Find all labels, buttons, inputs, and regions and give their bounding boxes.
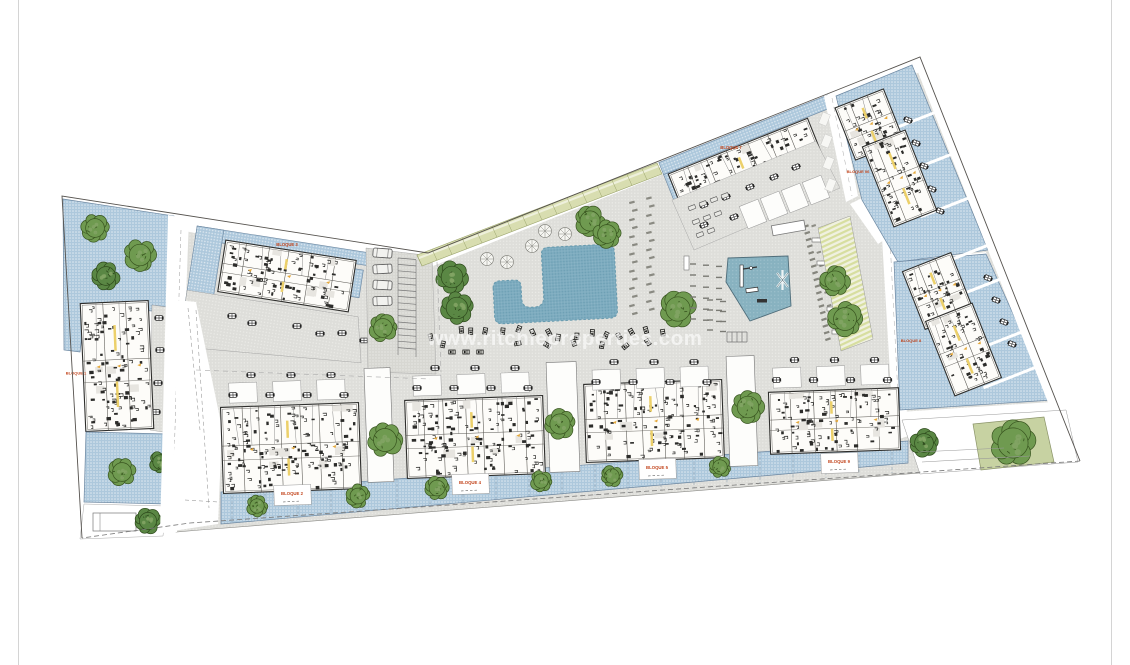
svg-text:BLOQUE 9: BLOQUE 9 bbox=[828, 459, 851, 464]
svg-text:BLOQUE 06: BLOQUE 06 bbox=[847, 169, 870, 174]
svg-text:BLOQUE 2: BLOQUE 2 bbox=[281, 491, 304, 496]
svg-text:BLOQUE 5: BLOQUE 5 bbox=[646, 465, 669, 470]
svg-text:BLOQUE 3: BLOQUE 3 bbox=[276, 242, 298, 247]
svg-text:www.ritchieproperties.com: www.ritchieproperties.com bbox=[427, 327, 703, 350]
svg-text:BLOQUE 8: BLOQUE 8 bbox=[901, 338, 922, 343]
svg-text:BLOQUE 7: BLOQUE 7 bbox=[720, 145, 742, 150]
svg-text:BLOQUE 4: BLOQUE 4 bbox=[459, 480, 482, 485]
svg-text:BLOQUE 1: BLOQUE 1 bbox=[66, 371, 87, 376]
